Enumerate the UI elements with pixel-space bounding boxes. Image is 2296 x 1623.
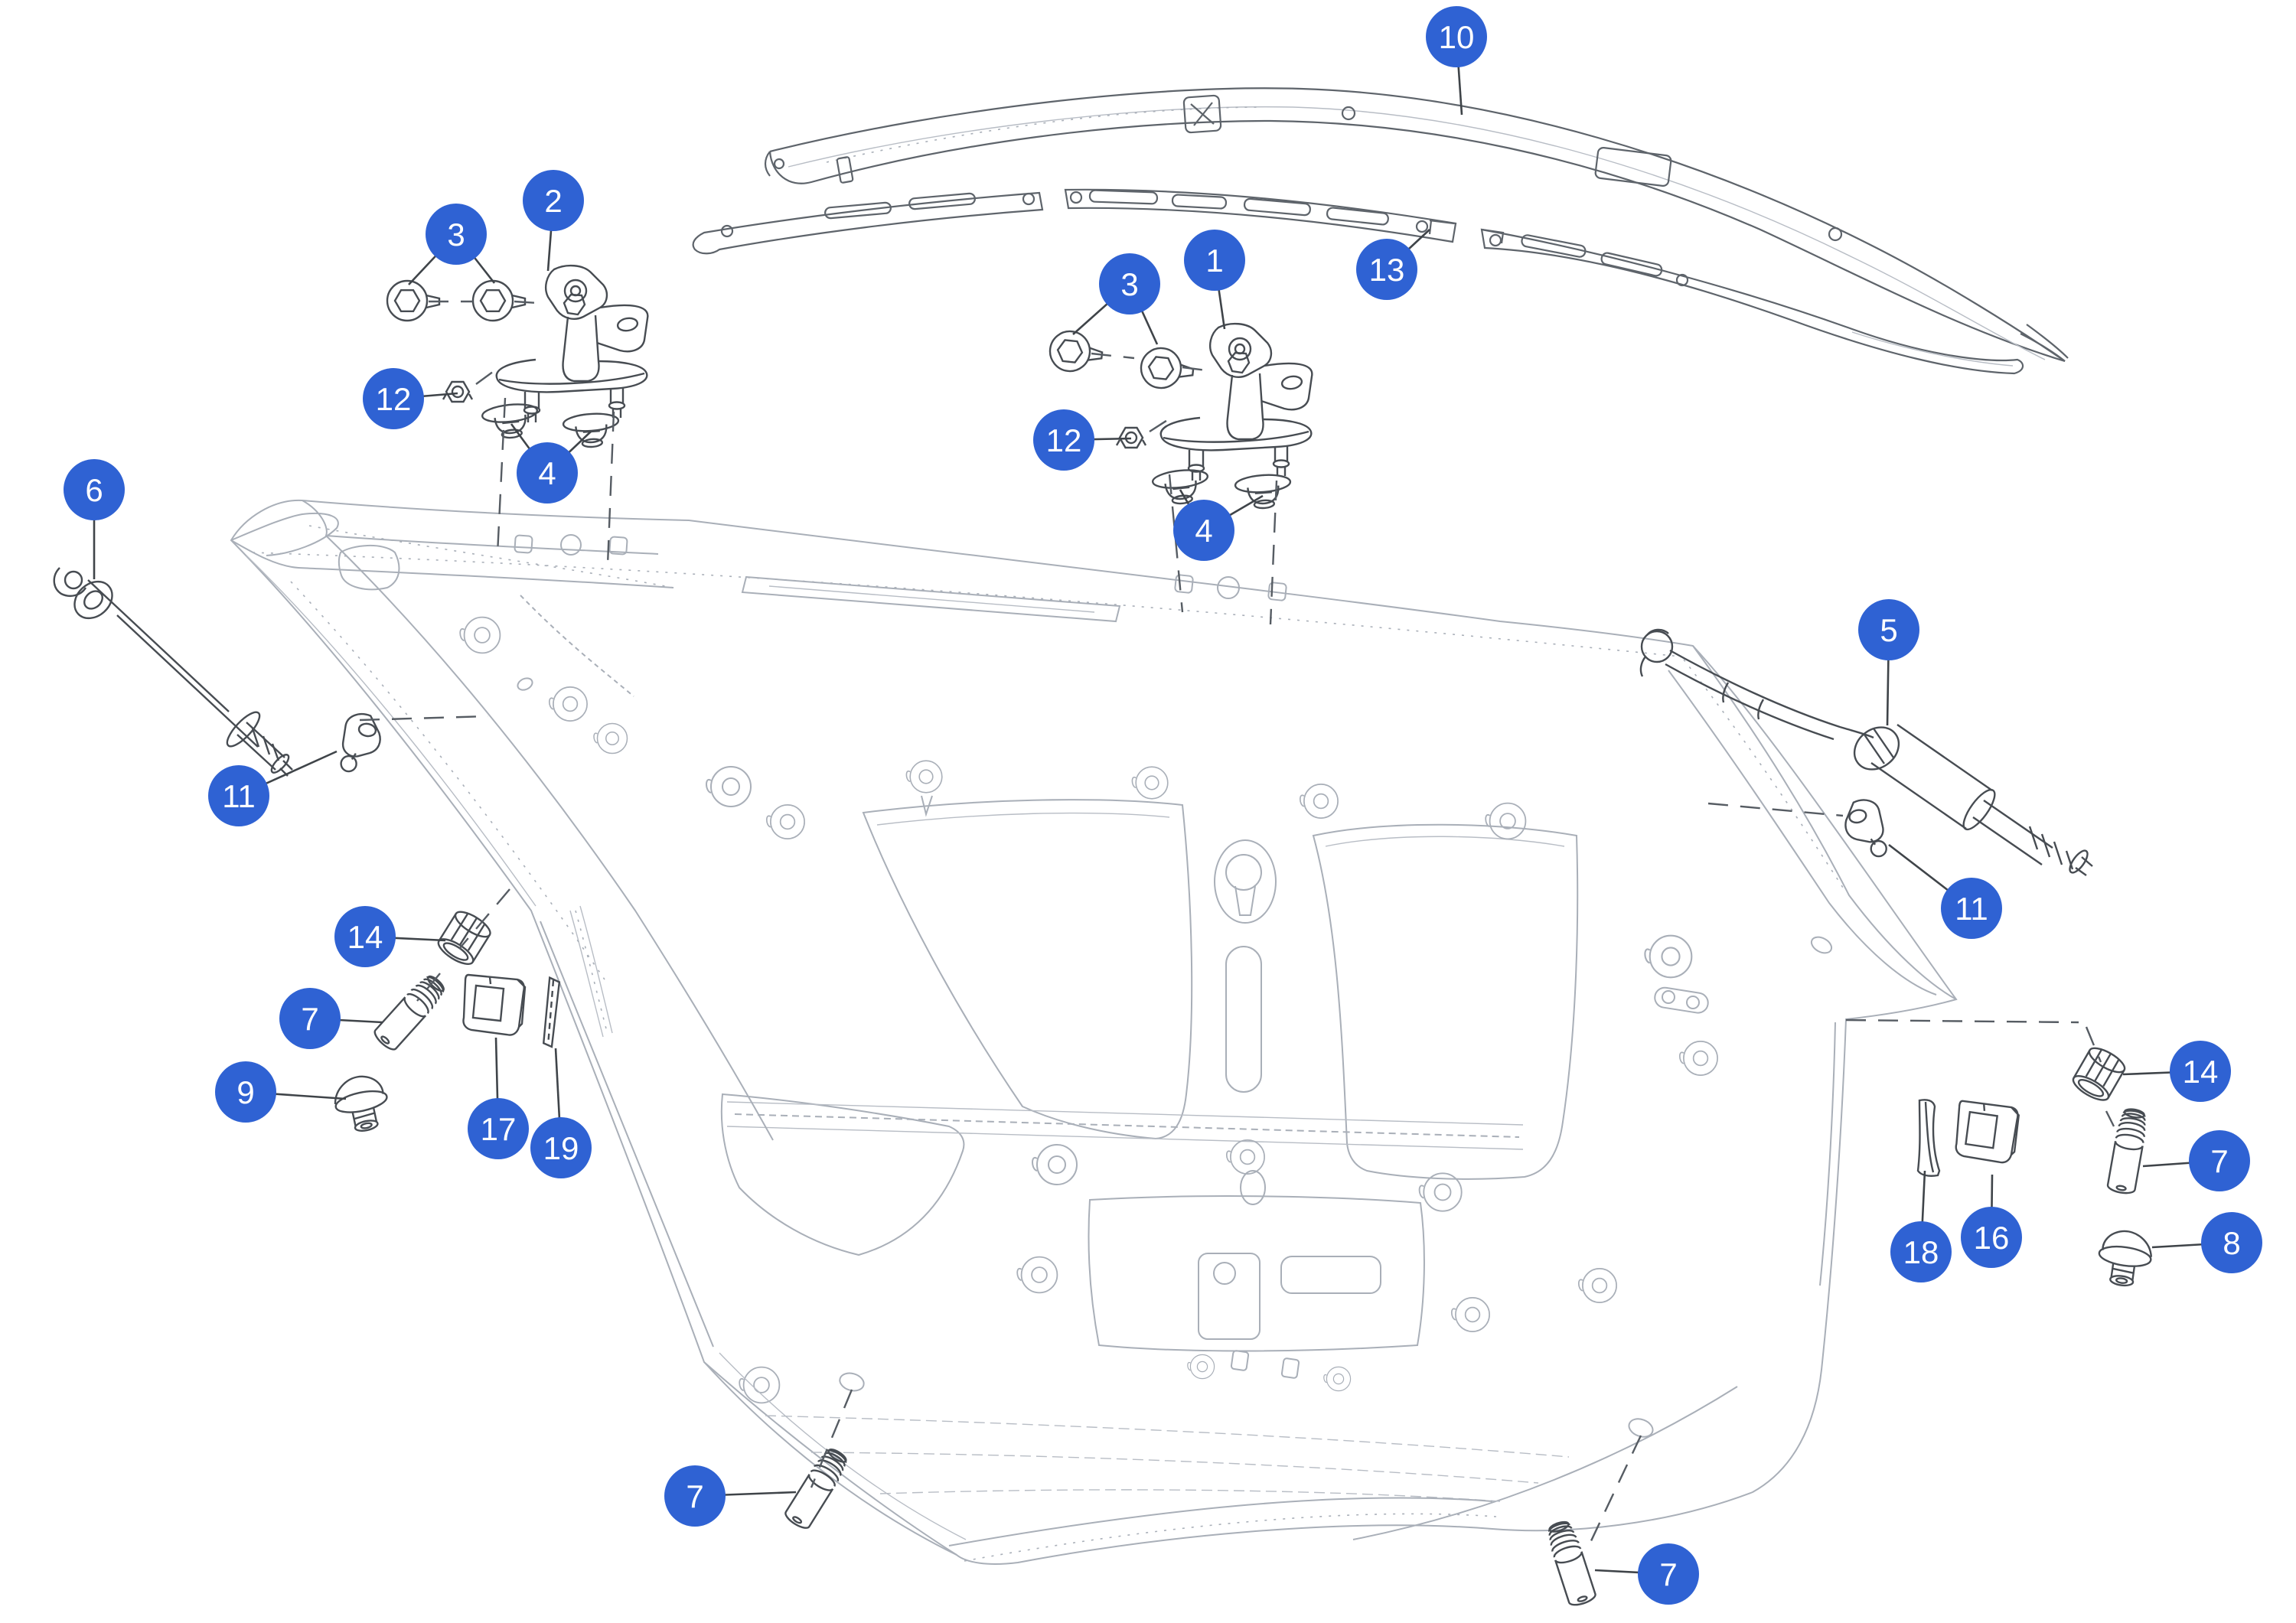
part-threaded-bumper-bottom-right xyxy=(1544,1519,1596,1608)
callout-badge-number: 7 xyxy=(2210,1143,2228,1179)
callout-badge-13[interactable]: 13 xyxy=(1356,239,1417,300)
callout-badge-number: 12 xyxy=(376,381,412,417)
part-clip-right xyxy=(2095,1228,2154,1289)
callout-leader-lines xyxy=(94,37,2232,1574)
callout-badge-4[interactable]: 4 xyxy=(1173,500,1234,561)
part-hinge-right xyxy=(1161,324,1313,481)
part-trim-strip-set xyxy=(693,190,2023,373)
callout-badge-5[interactable]: 5 xyxy=(1858,599,1919,660)
callout-badge-4[interactable]: 4 xyxy=(517,442,578,504)
callout-badge-number: 10 xyxy=(1439,19,1475,55)
callout-badge-1[interactable]: 1 xyxy=(1184,230,1245,291)
callout-badge-number: 2 xyxy=(544,183,562,219)
callout-badge-number: 14 xyxy=(2183,1054,2219,1090)
part-ball-stud-right xyxy=(1844,799,1890,857)
callout-badge-14[interactable]: 14 xyxy=(334,906,396,967)
callout-badge-number: 3 xyxy=(447,217,465,253)
callout-badge-number: 19 xyxy=(543,1130,579,1166)
callout-badge-18[interactable]: 18 xyxy=(1890,1221,1952,1282)
part-access-cap-left xyxy=(435,908,494,969)
callout-badge-14[interactable]: 14 xyxy=(2170,1041,2231,1102)
callout-badge-10[interactable]: 10 xyxy=(1426,6,1487,67)
callout-badge-number: 13 xyxy=(1369,252,1405,288)
callout-badge-number: 6 xyxy=(85,472,103,508)
part-bracket-right xyxy=(1955,1101,2019,1163)
callout-badge-number: 4 xyxy=(1195,513,1212,549)
diagram-stage: 12334456777789101111121213141416171819 xyxy=(0,0,2296,1623)
callout-badge-6[interactable]: 6 xyxy=(64,459,125,520)
part-threaded-bumper-bottom-left xyxy=(783,1445,851,1531)
part-wedge-right xyxy=(1918,1100,1939,1175)
callout-badge-8[interactable]: 8 xyxy=(2201,1212,2262,1273)
callout-badge-number: 7 xyxy=(1659,1556,1677,1592)
callout-badge-17[interactable]: 17 xyxy=(468,1098,529,1159)
callout-badge-number: 7 xyxy=(301,1001,318,1037)
part-threaded-bumper-left xyxy=(372,972,448,1053)
part-hinge-bolt xyxy=(473,281,525,321)
part-spacer-strip-left xyxy=(543,977,559,1047)
callout-badge-number: 3 xyxy=(1120,266,1138,302)
part-bracket-left xyxy=(463,975,525,1035)
exploded-view-svg: 12334456777789101111121213141416171819 xyxy=(0,0,2296,1623)
callout-badge-11[interactable]: 11 xyxy=(208,765,269,826)
callout-badge-7[interactable]: 7 xyxy=(1638,1543,1699,1605)
callout-badge-number: 11 xyxy=(1955,891,1988,927)
part-ball-stud-left xyxy=(334,712,384,772)
callout-badge-7[interactable]: 7 xyxy=(664,1465,726,1527)
part-gas-strut-left xyxy=(54,568,292,776)
part-stud-bumper xyxy=(481,402,540,440)
part-threaded-bumper-right xyxy=(2107,1107,2149,1195)
part-access-cap-right xyxy=(2069,1044,2128,1105)
callout-badge-12[interactable]: 12 xyxy=(1033,409,1094,471)
callout-badge-7[interactable]: 7 xyxy=(2189,1130,2250,1191)
callout-badge-number: 1 xyxy=(1205,243,1223,279)
part-hinge-left xyxy=(497,266,648,422)
part-stud-bumper xyxy=(563,412,620,449)
callout-badge-16[interactable]: 16 xyxy=(1961,1207,2022,1268)
part-clip-left xyxy=(331,1072,393,1136)
part-hinge-nut xyxy=(443,382,472,402)
callout-badge-number: 5 xyxy=(1880,612,1897,648)
callout-badge-7[interactable]: 7 xyxy=(279,988,341,1049)
callout-badge-number: 12 xyxy=(1046,422,1082,458)
part-hinge-nut xyxy=(1117,428,1146,448)
callout-badge-number: 14 xyxy=(347,919,383,955)
callout-badge-12[interactable]: 12 xyxy=(363,368,424,429)
callout-badge-number: 18 xyxy=(1903,1234,1939,1270)
callout-badge-number: 11 xyxy=(222,778,256,814)
part-stud-bumper xyxy=(1234,474,1292,510)
callout-badge-number: 7 xyxy=(686,1478,703,1514)
callout-badge-number: 4 xyxy=(538,455,556,491)
callout-badge-11[interactable]: 11 xyxy=(1941,878,2002,939)
callout-badge-9[interactable]: 9 xyxy=(215,1061,276,1123)
callout-badge-3[interactable]: 3 xyxy=(426,204,487,265)
callout-badge-3[interactable]: 3 xyxy=(1099,253,1160,314)
callout-badge-19[interactable]: 19 xyxy=(530,1117,592,1178)
callout-badge-number: 8 xyxy=(2223,1225,2240,1261)
part-hinge-bolt xyxy=(1048,329,1104,374)
callout-badge-number: 17 xyxy=(481,1111,517,1147)
callout-badge-number: 9 xyxy=(236,1074,254,1110)
callout-badge-2[interactable]: 2 xyxy=(523,170,584,231)
callout-badge-number: 16 xyxy=(1974,1220,2010,1256)
